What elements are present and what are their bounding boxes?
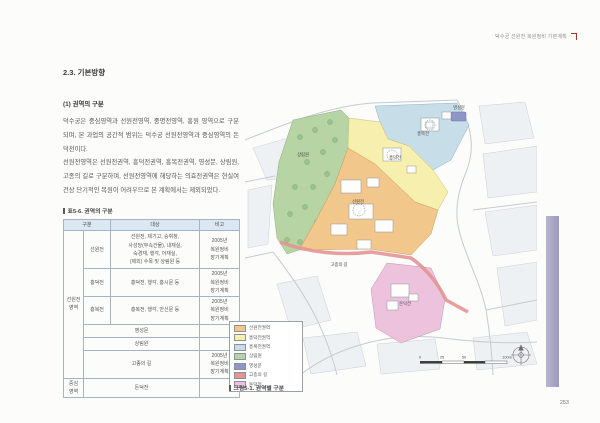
table-cell-name: 흥복전 xyxy=(84,297,111,325)
corner-bracket-icon xyxy=(571,33,577,40)
table-cell-name: 선원전 xyxy=(84,231,111,269)
table-cell-name: 영성문 xyxy=(84,324,200,337)
caption-bar-icon xyxy=(63,208,65,214)
legend-label: 선원전권역 xyxy=(249,326,270,331)
region-table: 구분 대상 비고 선원전 영역 선원전 선원전, 제기고, 승휘청, 사성당(부… xyxy=(63,219,240,398)
table-cell-name: 돈덕전 xyxy=(84,378,200,398)
legend-item: 고종의 길 xyxy=(234,372,298,379)
table-cell-group: 중심 영역 xyxy=(64,378,84,398)
legend-swatch-gojong-road xyxy=(234,372,246,379)
paragraph: 선원전영역은 선원전권역, 흥덕전권역, 흥복전권역, 영성문, 상림원, 고종… xyxy=(63,156,239,197)
paragraph: 덕수궁은 중심영역과 선원전영역, 중명전영역, 홍원 영역으로 구분되며, 본… xyxy=(63,115,239,156)
table-cell-target: 흥덕전, 행각, 흥시문 등 xyxy=(111,269,200,297)
table-row: 선원전 영역 선원전 선원전, 제기고, 승휘청, 사성당(부속건물), 내재실… xyxy=(64,231,240,269)
legend-swatch-yeongseongmun xyxy=(234,363,246,370)
page-header: 덕수궁 선원전 복원정비 기본계획 xyxy=(495,33,577,40)
table-row: 흥복전 흥복전, 행각, 안신문 등 2005년 복원정비 장기계획 xyxy=(64,297,240,325)
legend-item: 영성문 xyxy=(234,363,298,370)
table-cell-target: 선원전, 제기고, 승휘청, 사성당(부속건물), 내재실, 숙경재, 행각, … xyxy=(111,231,200,269)
scale-tick-25: 25 xyxy=(440,356,444,360)
table-row: 고종의 길 2005년 복원정비 장기계획 xyxy=(64,350,240,378)
caption-bar-icon xyxy=(229,385,231,391)
scale-tick-50: 50 xyxy=(462,356,466,360)
zone-yeongseongmun xyxy=(451,112,466,121)
legend-swatch-heungbokjeon xyxy=(234,344,246,351)
legend-swatch-heungdeokjeon xyxy=(234,334,246,341)
figure-caption-text: 그림5-1. 권역별 구분 xyxy=(234,383,285,392)
map-legend: 선원전권역 흥덕전권역 흥복전권역 상림원 영성문 고종의 길 돈덕전 xyxy=(229,321,303,392)
map-label-dondeokjeon: 돈덕전 xyxy=(399,300,411,307)
table-cell-name: 흥덕전 xyxy=(84,269,111,297)
table-row: 영성문 xyxy=(64,324,240,337)
scale-tick-100m: 100m xyxy=(502,356,512,360)
legend-label: 영성문 xyxy=(249,364,262,369)
col-header-note: 비고 xyxy=(200,220,240,231)
map-label-yeongseongmun: 영성문 xyxy=(453,104,465,110)
table-row: 중심 영역 돈덕전 xyxy=(64,378,240,398)
legend-swatch-sangnimwon xyxy=(234,353,246,360)
table-row: 상림원 xyxy=(64,337,240,350)
map-label-sangnimwon: 상림원 xyxy=(297,151,309,157)
table-header-row: 구분 대상 비고 xyxy=(64,220,240,231)
page-number: 253 xyxy=(560,400,569,406)
figure-caption: 그림5-1. 권역별 구분 xyxy=(229,383,284,392)
map-label-seonwonjeon: 선원전 xyxy=(352,198,364,204)
header-title: 덕수궁 선원전 복원정비 기본계획 xyxy=(495,33,567,40)
table-row: 흥덕전 흥덕전, 행각, 흥시문 등 2005년 복원정비 장기계획 xyxy=(64,269,240,297)
col-header-target: 대상 xyxy=(111,220,200,231)
text-column: 2.3. 기본방향 (1) 권역의 구분 덕수궁은 중심영역과 선원전영역, 중… xyxy=(63,67,239,198)
legend-label: 흥덕전권역 xyxy=(249,336,270,341)
legend-swatch-seonwonjeon xyxy=(234,325,246,332)
map-label-heungbokjeon: 흥복전 xyxy=(417,130,429,137)
col-header-group: 구분 xyxy=(64,220,111,231)
legend-item: 흥덕전권역 xyxy=(234,334,298,341)
legend-item: 상림원 xyxy=(234,353,298,360)
document-page: 덕수궁 선원전 복원정비 기본계획 2.3. 기본방향 (1) 권역의 구분 덕… xyxy=(0,0,600,423)
legend-item: 흥복전권역 xyxy=(234,344,298,351)
legend-item: 선원전권역 xyxy=(234,325,298,332)
legend-label: 상림원 xyxy=(249,354,262,359)
table-cell-name: 상림원 xyxy=(84,337,200,350)
legend-label: 흥복전권역 xyxy=(249,345,270,350)
region-table-block: 표5-6. 권역의 구분 구분 대상 비고 선원전 영역 선원전 선원전, 제기… xyxy=(63,206,239,398)
legend-label: 고종의 길 xyxy=(249,373,267,378)
scale-tick-0: 0 xyxy=(419,356,421,360)
map-label-gojong-road: 고종의 길 xyxy=(330,261,347,268)
section-edge-tab xyxy=(546,216,559,387)
section-title: 2.3. 기본방향 xyxy=(63,67,239,78)
table-cell-note: 2005년 복원정비 장기계획 xyxy=(200,231,240,269)
table-cell-name: 고종의 길 xyxy=(84,350,200,378)
table-cell-group: 선원전 영역 xyxy=(64,231,84,378)
table-cell-note: 2005년 복원정비 장기계획 xyxy=(200,269,240,297)
map-label-heungdeokjeon: 흥덕전 xyxy=(389,154,401,161)
table-caption: 표5-6. 권역의 구분 xyxy=(63,206,239,215)
table-cell-target: 흥복전, 행각, 안신문 등 xyxy=(111,297,200,325)
table-caption-text: 표5-6. 권역의 구분 xyxy=(68,206,113,215)
subsection-title: (1) 권역의 구분 xyxy=(63,99,239,108)
